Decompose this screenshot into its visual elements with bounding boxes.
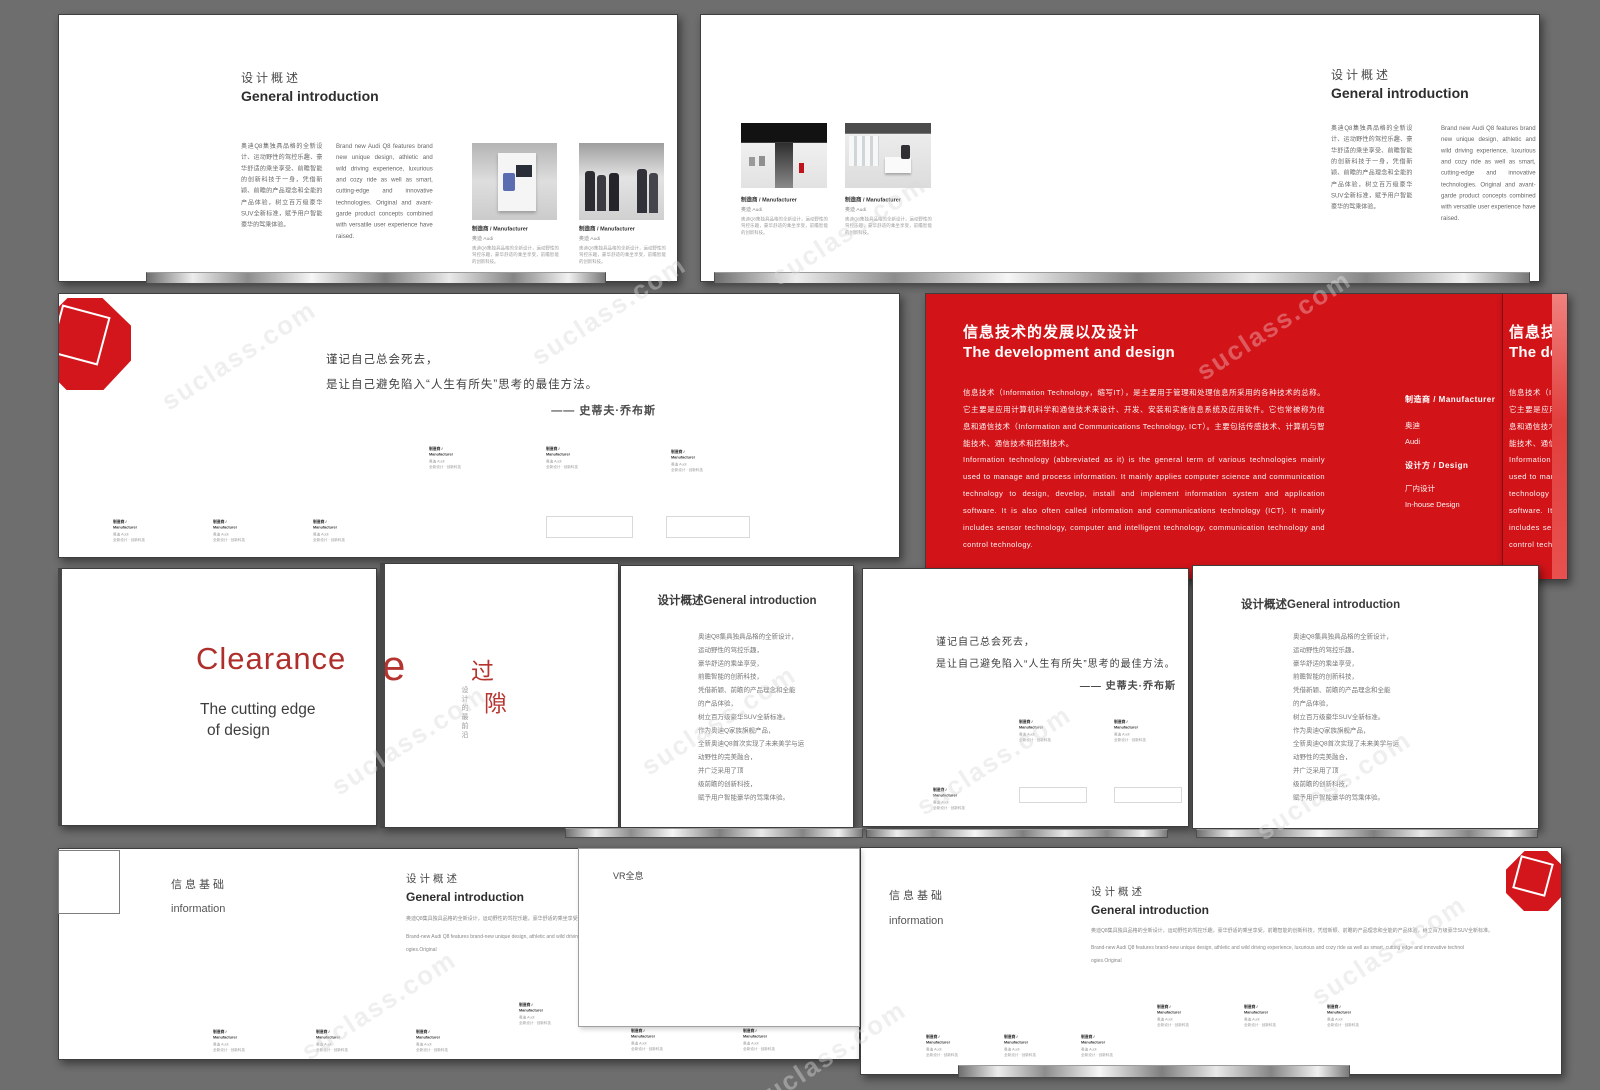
quote-attribution: —— 史蒂夫·乔布斯 [936,677,1176,692]
mini-line: 全新设计 · 创新科技 [926,1052,1001,1057]
mini-line: Manufacturer [1081,1040,1156,1046]
photo-showroom-window [849,136,879,166]
photo-corridor-frame [759,156,765,166]
mini-caption: 制造商 /Manufacturer奥迪 Audi全新设计 · 创新科技 [671,449,749,483]
heading-en: General introduction [1331,85,1469,101]
text-line: 动野性的完美融合， [1293,751,1473,764]
mini-line: 全新设计 · 创新科技 [1114,737,1189,742]
cover-title: Clearance [196,641,346,677]
text-line: 豪华舒适的乘坐享受， [698,657,848,670]
manufacturer-zh: 奥迪 [1405,420,1420,431]
guoxi-char-1: 过 [471,652,494,686]
text-line: 作为奥迪Q家族旗舰产品， [698,724,848,737]
mini-caption: 制造商 /Manufacturer奥迪 Audi全新设计 · 创新科技 [1004,1034,1082,1064]
photo-showroom [845,123,931,188]
text-line: 作为奥迪Q家族旗舰产品， [1293,724,1473,737]
caption-body: 奥迪Q8集独具品格的全新设计，运动野性的驾控乐趣，豪华舒适的乘坐享受，前瞻智能的… [472,245,559,265]
text-line: 凭借新颖、前瞻的产品理念和全能 [1293,684,1473,697]
mini-line: 全新设计 · 创新科技 [429,464,504,469]
heading-en: General introduction [406,890,524,904]
mini-caption: 制造商 /Manufacturer奥迪 Audi全新设计 · 创新科技 [1081,1034,1159,1064]
mini-caption: 制造商 /Manufacturer奥迪 Audi全新设计 · 创新科技 [743,1028,821,1058]
mini-line: Manufacturer [631,1034,706,1040]
mini-caption: 制造商 /Manufacturer奥迪 Audi全新设计 · 创新科技 [1327,1004,1405,1034]
text-line: 的产品体验， [1293,697,1473,710]
mini-caption: 制造商 /Manufacturer奥迪 Audi全新设计 · 创新科技 [416,1029,494,1059]
photo-corridor-red-object [799,163,804,173]
red-title-zh: 信息技术的发展以及设计 [963,321,1139,342]
mini-caption: 制造商 /Manufacturer奥迪 Audi全新设计 · 创新科技 [546,446,624,480]
text-line: 奥迪Q8集具独具品格的全新设计， [698,630,848,643]
slide-intro-left: 设计概述 General introduction 奥迪Q8集独具品格的全新设计… [58,14,678,282]
mini-line: Manufacturer [933,793,1008,799]
caption-title: 制造商 / Manufacturer [579,224,666,232]
mini-line: 全新设计 · 创新科技 [1327,1022,1402,1027]
white-square-overlay [58,850,120,914]
mini-line: 全新设计 · 创新科技 [1244,1022,1319,1027]
slide-guoxi: e 过 隙 设计的最前沿 [380,563,619,828]
cover-partial-letter: e [382,642,405,690]
mini-line: 全新设计 · 创新科技 [1004,1052,1079,1057]
red-paragraph-zh: 信息技术（Information Technology，缩写IT），是主要用于管… [963,384,1325,452]
mini-line: 全新设计 · 创新科技 [1081,1052,1156,1057]
heading-zh: 设计概述 [406,871,460,886]
mini-line: Manufacturer [213,1035,288,1041]
quote-line-2: 是让自己避免陷入“人生有所失”思考的最佳方法。 [326,376,598,392]
text-line: 树立百万级豪华SUV全新标准。 [1293,710,1473,723]
vr-title: VR全息 [613,869,644,882]
info-heading-zh: 信息基础 [171,876,227,892]
canvas-background: 设计概述 General introduction 奥迪Q8集独具品格的全新设计… [0,0,1600,1090]
mini-line: 全新设计 · 创新科技 [1157,1022,1232,1027]
slide-quote-large: 谨记自己总会死去， 是让自己避免陷入“人生有所失”思考的最佳方法。 —— 史蒂夫… [58,293,900,558]
info-heading-en: information [889,915,943,927]
mini-line: 全新设计 · 创新科技 [113,537,188,542]
mini-caption: 制造商 /Manufacturer奥迪 Audi全新设计 · 创新科技 [933,787,1011,821]
info-heading-zh: 信息基础 [889,887,945,903]
text-line: 全新奥迪Q8首次实现了未来美学与运 [1293,737,1473,750]
mini-caption: 制造商 /Manufacturer奥迪 Audi全新设计 · 创新科技 [316,1029,394,1059]
intro-line-zh: 奥迪Q8集具独具品格的全新设计，运动野性的驾控乐趣，豪华舒适的乘坐享受，前瞻智能… [1091,927,1521,935]
text-line: 并广泛采用了顶 [698,764,848,777]
mini-line: 全新设计 · 创新科技 [933,805,1008,810]
guoxi-vertical-subtitle: 设计的最前沿 [459,686,469,758]
slide-cover-clearance: Clearance The cutting edge of design [58,568,377,826]
logo-square-mark [58,304,110,365]
photo-showroom-chair [901,145,910,159]
mini-line: 全新设计 · 创新科技 [316,1047,391,1052]
caption-body: 奥迪Q8集独具品格的全新设计，运动野性的驾控乐趣，豪华舒适的乘坐享受，前瞻智能的… [741,216,828,236]
text-line: 赋予用户智能豪华的驾乘体验。 [1293,791,1473,804]
mini-caption: 制造商 /Manufacturer奥迪 Audi全新设计 · 创新科技 [213,519,291,553]
photo-caption: 制造商 / Manufacturer 奥迪 Audi 奥迪Q8集独具品格的全新设… [741,195,831,251]
mini-caption: 制造商 /Manufacturer奥迪 Audi全新设计 · 创新科技 [631,1028,709,1058]
mini-caption: 制造商 /Manufacturer奥迪 Audi全新设计 · 创新科技 [113,519,191,553]
manufacturer-en: Audi [1405,437,1420,446]
caption-title: 制造商 / Manufacturer [472,224,559,232]
paragraph-zh: 奥迪Q8集独具品格的全新设计、运动野性的驾控乐趣、豪华舒适的乘坐享受、前瞻智能的… [241,141,322,231]
logo-square-mark [1512,855,1554,897]
chrome-strip [866,829,1168,838]
caption-subtitle: 奥迪 Audi [472,234,559,241]
mini-line: Manufacturer [546,452,621,458]
slide-info-basics-right: 信息基础 information 设计概述 General introducti… [860,847,1562,1075]
mini-line: Manufacturer [1114,725,1189,731]
photo-showroom-desk [885,157,911,173]
mini-line: 全新设计 · 创新科技 [213,537,288,542]
mini-line: Manufacturer [743,1034,818,1040]
mini-caption: 制造商 /Manufacturer奥迪 Audi全新设计 · 创新科技 [1019,719,1097,753]
mini-line: 全新设计 · 创新科技 [416,1047,491,1052]
mini-line: Manufacturer [429,452,504,458]
photo-showcase [472,143,557,220]
text-line: 级前瞻的创新科技， [698,777,848,790]
guoxi-char-2: 隙 [484,684,507,718]
heading-zh: 设计概述 [241,69,301,86]
paragraph-zh-wrap: 奥迪Q8集独具品格的全新设计、运动野性的驾控乐趣、豪华舒适的乘坐享受、前瞻智能的… [1331,123,1413,253]
mini-line: 全新设计 · 创新科技 [546,464,621,469]
overview-lines: 奥迪Q8集具独具品格的全新设计，运动野性的驾控乐趣，豪华舒适的乘坐享受，前瞻智能… [1293,630,1473,804]
text-line: 动野性的完美融合， [698,751,848,764]
mini-caption: 制造商 /Manufacturer奥迪 Audi全新设计 · 创新科技 [213,1029,291,1059]
quote-attribution: —— 史蒂夫·乔布斯 [326,402,656,418]
mini-caption: 制造商 /Manufacturer奥迪 Audi全新设计 · 创新科技 [1114,719,1189,753]
text-line: 运动野性的驾控乐趣， [1293,643,1473,656]
intro-line-en1-wrap: Brand-new Audi Q8 features brand-new uni… [1091,944,1521,956]
photo-visitor-figure [597,175,606,211]
photo-corridor-frame [749,157,755,166]
mini-line: Manufacturer [1327,1010,1402,1016]
mini-line: Manufacturer [416,1035,491,1041]
chrome-strip [958,1065,1350,1078]
placeholder-rect [666,516,750,538]
paragraph-zh-wrap: 奥迪Q8集独具品格的全新设计、运动野性的驾控乐趣、豪华舒适的乘坐享受、前瞻智能的… [241,141,323,261]
slide-overview-list-2: 设计概述General introduction 奥迪Q8集具独具品格的全新设计… [1192,565,1539,829]
mini-line: Manufacturer [213,525,288,531]
mini-line: Manufacturer [113,525,188,531]
paragraph-en-wrap: Brand new Audi Q8 features brand new uni… [336,141,434,261]
paragraph-en: Brand new Audi Q8 features brand new uni… [1441,123,1536,224]
paragraph-zh: 奥迪Q8集独具品格的全新设计、运动野性的驾控乐趣、豪华舒适的乘坐享受、前瞻智能的… [1331,123,1412,213]
red-slide-edge-highlight [1552,294,1567,579]
paragraph-en: Brand new Audi Q8 features brand new uni… [336,141,433,242]
overview-lines-wrap: 奥迪Q8集具独具品格的全新设计，运动野性的驾控乐趣，豪华舒适的乘坐享受，前瞻智能… [1293,630,1473,820]
caption-title: 制造商 / Manufacturer [845,195,932,203]
caption-title: 制造商 / Manufacturer [741,195,828,203]
mini-line: Manufacturer [1004,1040,1079,1046]
caption-body: 奥迪Q8集独具品格的全新设计，运动野性的驾控乐趣，豪华舒适的乘坐享受，前瞻智能的… [579,245,666,265]
caption-subtitle: 奥迪 Audi [579,234,666,241]
chrome-strip [146,272,606,284]
mini-line: 全新设计 · 创新科技 [631,1046,706,1051]
text-line: 并广泛采用了顶 [1293,764,1473,777]
chrome-strip [565,828,863,838]
quote-line-1: 谨记自己总会死去， [936,633,1035,648]
slide-red-info-partial: 信息技术的发展以及设计 The development and design 信… [1502,293,1568,580]
overview-title: 设计概述General introduction [1241,596,1400,612]
slide-overview-list-1: 设计概述General introduction 奥迪Q8集具独具品格的全新设计… [620,565,854,828]
overview-title: 设计概述General introduction [621,592,853,608]
mini-caption: 制造商 /Manufacturer奥迪 Audi全新设计 · 创新科技 [926,1034,1004,1064]
brand-octagon-logo [1506,851,1562,911]
mini-line: Manufacturer [671,455,746,461]
chrome-strip [1196,829,1538,838]
design-zh: 厂内设计 [1405,483,1435,494]
intro-line-en1: Brand-new Audi Q8 features brand-new uni… [1091,944,1521,952]
mini-line: 全新设计 · 创新科技 [313,537,388,542]
text-line: 奥迪Q8集具独具品格的全新设计， [1293,630,1473,643]
design-label: 设计方 / Design [1405,460,1468,471]
photo-visitor-figure [649,173,658,213]
intro-line-zh-wrap: 奥迪Q8集具独具品格的全新设计，运动野性的驾控乐趣，豪华舒适的乘坐享受，前瞻智能… [1091,927,1521,939]
text-line: 树立百万级豪华SUV全新标准。 [698,710,848,723]
slide-quote-small: 谨记自己总会死去， 是让自己避免陷入“人生有所失”思考的最佳方法。 —— 史蒂夫… [862,568,1189,827]
photo-showcase-exhibit [503,173,515,191]
placeholder-rect [1114,787,1182,803]
photo-corridor [741,123,827,188]
cover-subtitle-2: of design [207,722,270,740]
heading-en: General introduction [1091,903,1209,917]
mini-line: Manufacturer [313,525,388,531]
intro-line-en2: ogies.Original [1091,957,1521,965]
brand-octagon-logo [58,298,131,390]
mini-line: Manufacturer [316,1035,391,1041]
photo-showcase-screen [516,165,532,177]
mini-caption: 制造商 /Manufacturer奥迪 Audi全新设计 · 创新科技 [313,519,391,553]
mini-caption: 制造商 /Manufacturer奥迪 Audi全新设计 · 创新科技 [1157,1004,1235,1034]
photo-caption: 制造商 / Manufacturer 奥迪 Audi 奥迪Q8集独具品格的全新设… [845,195,935,251]
text-line: 赋予用户智能豪华的驾乘体验。 [698,791,848,804]
text-line: 豪华舒适的乘坐享受， [1293,657,1473,670]
quote-line-2: 是让自己避免陷入“人生有所失”思考的最佳方法。 [936,655,1176,670]
caption-subtitle: 奥迪 Audi [741,205,828,212]
cover-subtitle-1: The cutting edge [200,701,315,719]
heading-en: General introduction [241,88,379,104]
caption-body: 奥迪Q8集独具品格的全新设计，运动野性的驾控乐趣，豪华舒适的乘坐享受，前瞻智能的… [845,216,932,236]
paragraph-en-wrap: Brand new Audi Q8 features brand new uni… [1441,123,1537,253]
panel-vr-hologram: VR全息 [578,848,860,1027]
placeholder-rect [546,516,633,538]
photo-visitor-figure [585,171,595,211]
design-en: In-house Design [1405,500,1460,509]
text-line: 的产品体验， [698,697,848,710]
mini-caption: 制造商 /Manufacturer奥迪 Audi全新设计 · 创新科技 [1244,1004,1322,1034]
slide-intro-right: 制造商 / Manufacturer 奥迪 Audi 奥迪Q8集独具品格的全新设… [700,14,1540,282]
placeholder-rect [1019,787,1087,803]
mini-line: 全新设计 · 创新科技 [671,467,746,472]
mini-line: Manufacturer [1157,1010,1232,1016]
mini-line: 全新设计 · 创新科技 [213,1047,288,1052]
mini-caption: 制造商 /Manufacturer奥迪 Audi全新设计 · 创新科技 [429,446,507,480]
text-line: 运动野性的驾控乐趣， [698,643,848,656]
red-title-en: The development and design [963,344,1175,361]
heading-zh: 设计概述 [1091,884,1145,899]
mini-line: Manufacturer [1244,1010,1319,1016]
mini-line: Manufacturer [926,1040,1001,1046]
manufacturer-label: 制造商 / Manufacturer [1405,394,1495,405]
text-line: 级前瞻的创新科技， [1293,777,1473,790]
text-line: 凭借新颖、前瞻的产品理念和全能 [698,684,848,697]
quote-line-1: 谨记自己总会死去， [326,351,439,367]
overview-lines-wrap: 奥迪Q8集具独具品格的全新设计，运动野性的驾控乐趣，豪华舒适的乘坐享受，前瞻智能… [698,630,848,820]
mini-line: Manufacturer [1019,725,1094,731]
photo-corridor-floor [775,143,793,188]
photo-visitor-figure [637,169,647,213]
info-heading-en: information [171,903,225,915]
caption-subtitle: 奥迪 Audi [845,205,932,212]
text-line: 全新奥迪Q8首次实现了未来美学与运 [698,737,848,750]
text-line: 前瞻智能的创新科技， [1293,670,1473,683]
mini-line: 全新设计 · 创新科技 [743,1046,818,1051]
photo-visitors [579,143,664,220]
photo-visitor-figure [609,173,619,211]
red-paragraph-en: Information technology (abbreviated as i… [963,451,1325,553]
intro-line-en2-wrap: ogies.Original [1091,957,1521,969]
slide-red-info: 信息技术的发展以及设计 The development and design 信… [925,293,1504,580]
text-line: 前瞻智能的创新科技， [698,670,848,683]
chrome-strip [714,272,1530,284]
overview-lines: 奥迪Q8集具独具品格的全新设计，运动野性的驾控乐趣，豪华舒适的乘坐享受，前瞻智能… [698,630,848,804]
heading-zh: 设计概述 [1331,66,1391,83]
mini-line: 全新设计 · 创新科技 [1019,737,1094,742]
